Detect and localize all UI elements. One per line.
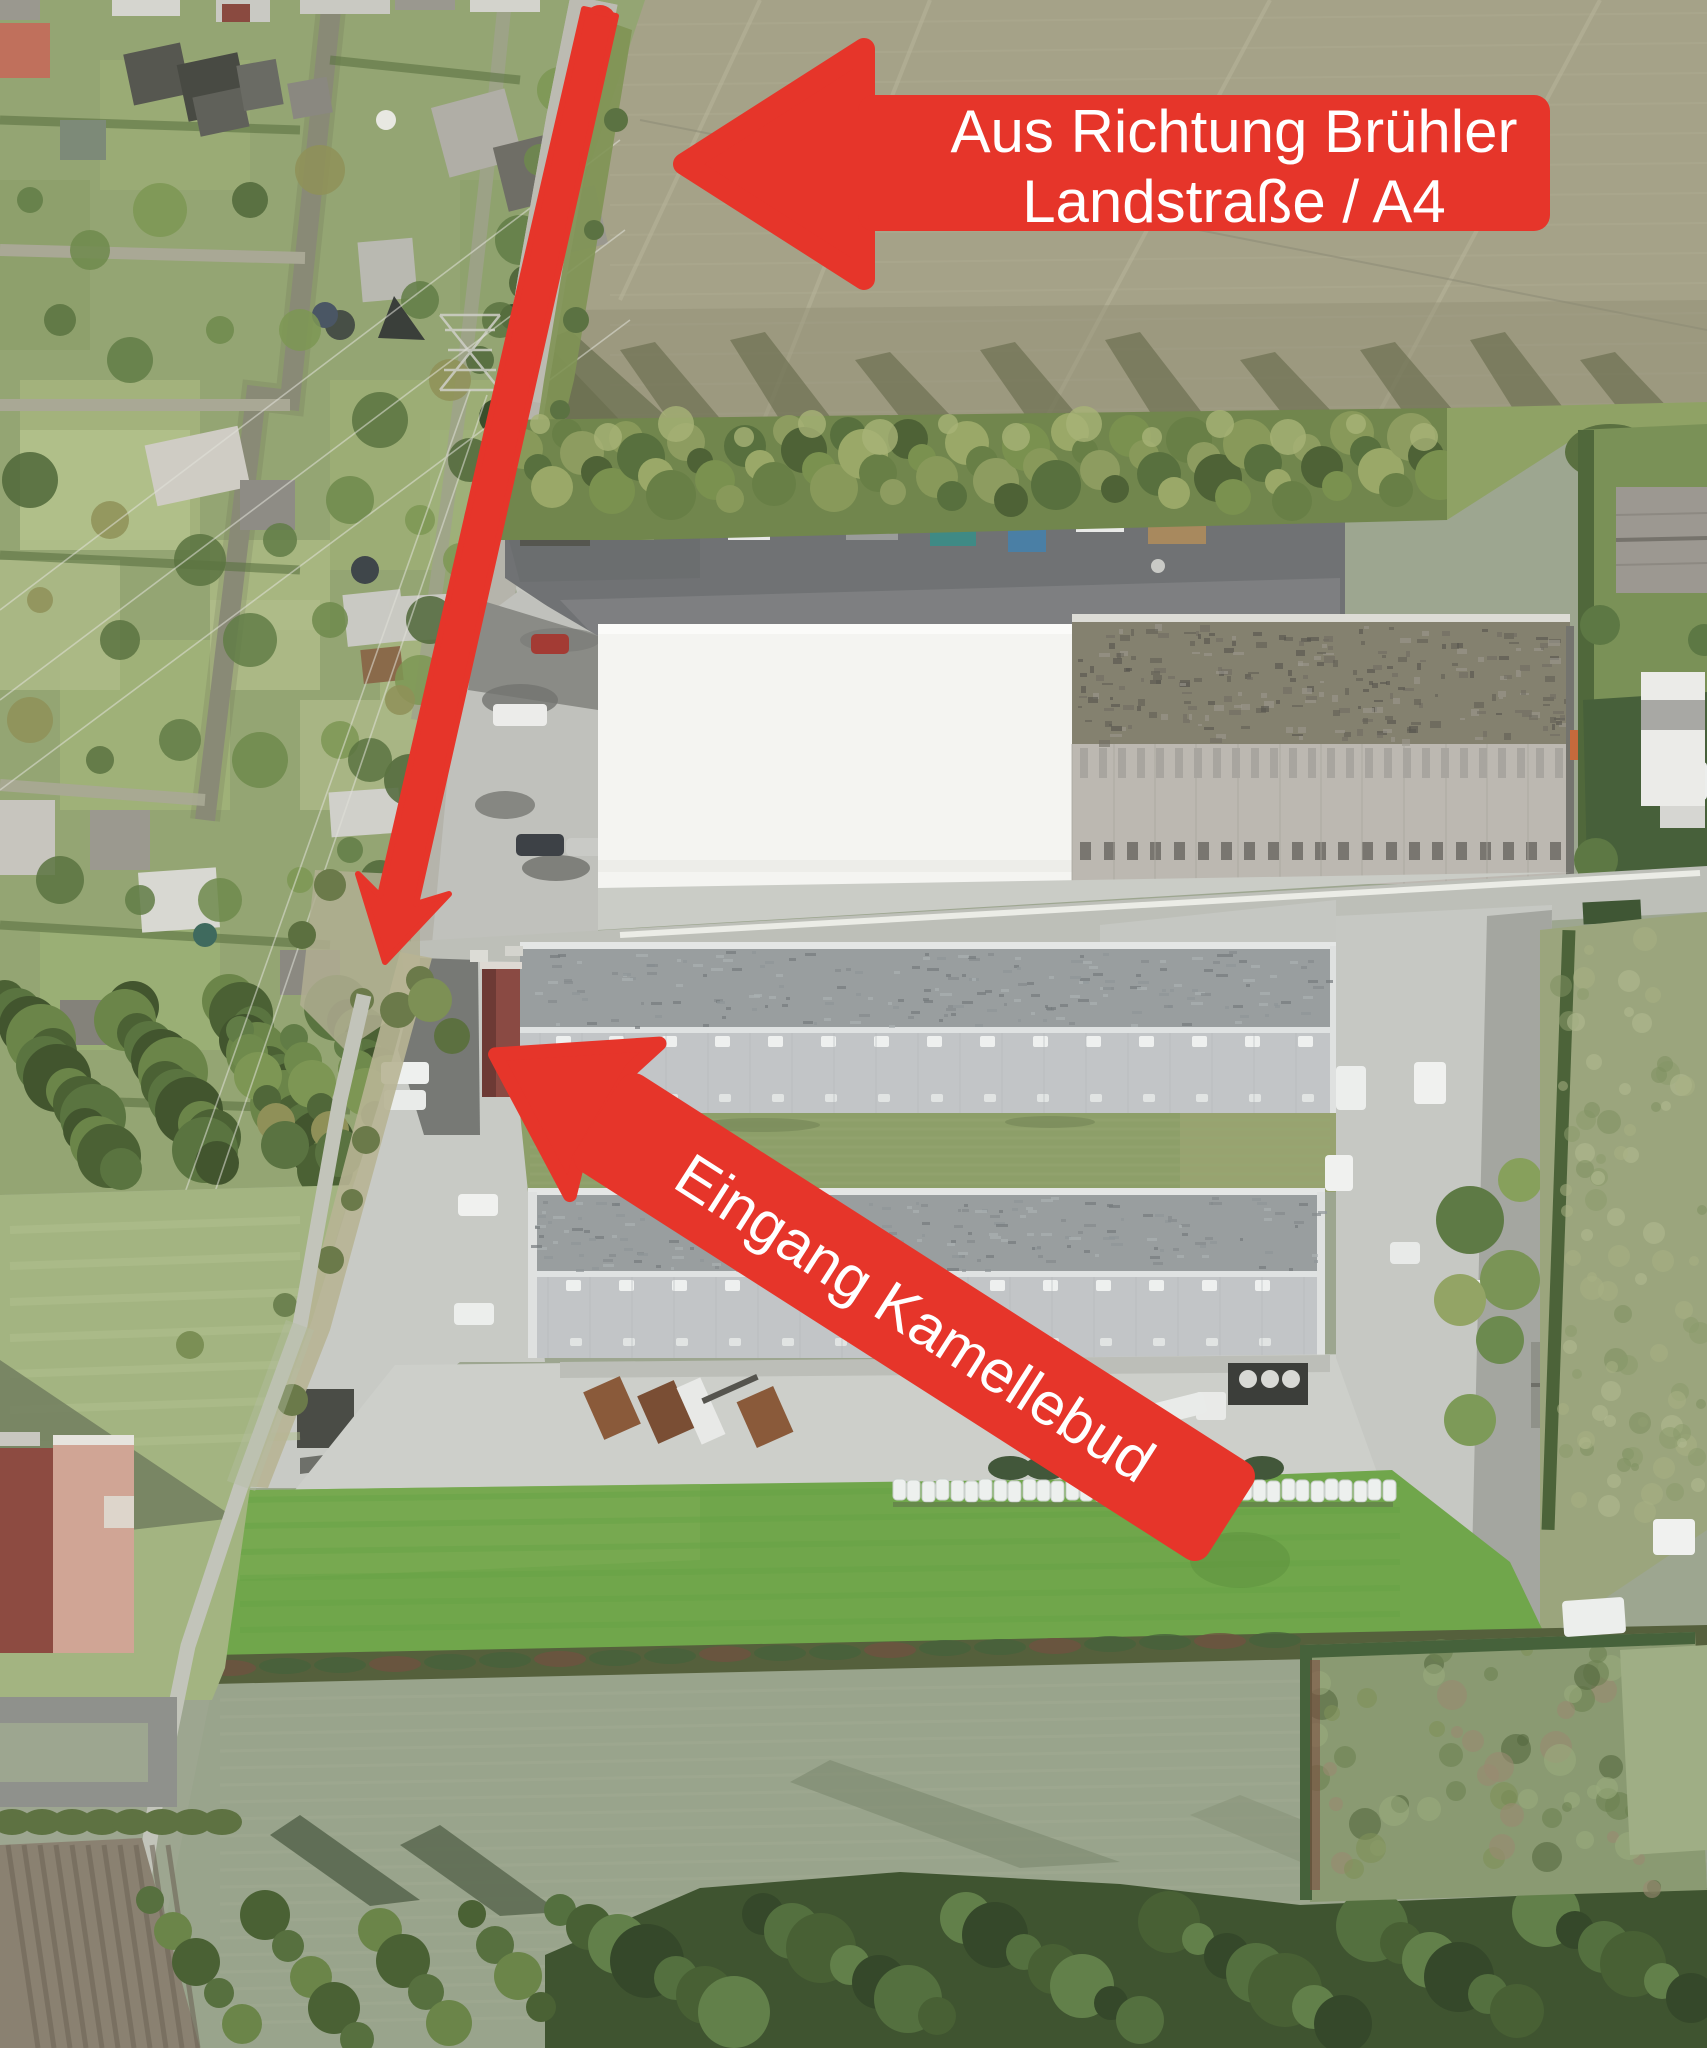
svg-text:Landstraße / A4: Landstraße / A4 [1022, 168, 1446, 235]
svg-text:Aus Richtung Brühler: Aus Richtung Brühler [951, 98, 1518, 165]
